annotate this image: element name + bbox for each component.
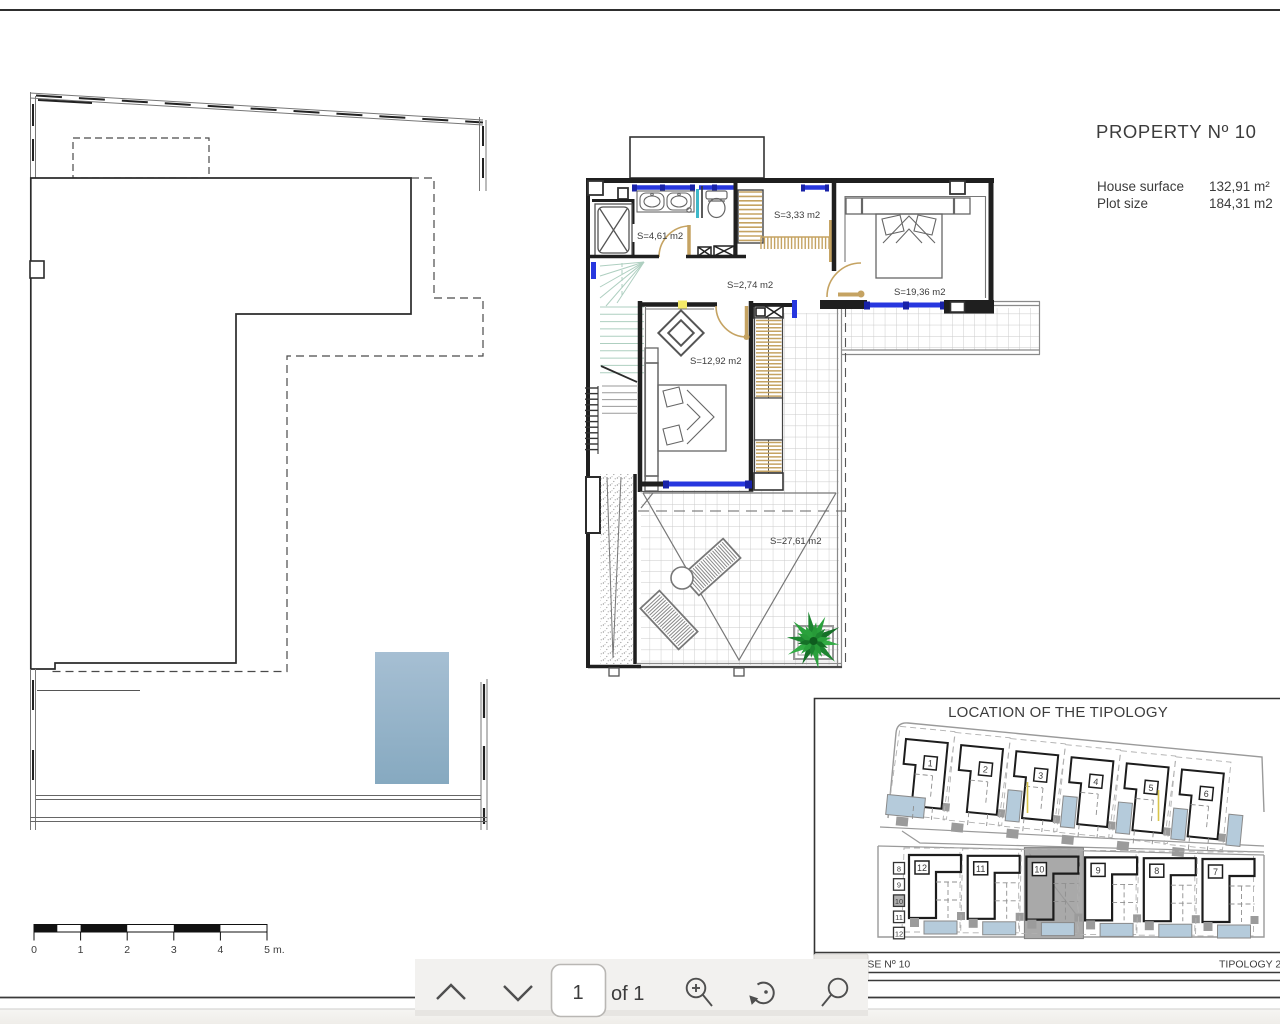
svg-text:Plot size: Plot size	[1097, 196, 1148, 211]
svg-text:3: 3	[171, 944, 177, 956]
svg-text:2: 2	[124, 944, 130, 956]
svg-text:House surface: House surface	[1097, 179, 1184, 194]
svg-text:2: 2	[982, 764, 988, 774]
svg-text:3: 3	[1038, 770, 1044, 780]
svg-text:132,91 m²: 132,91 m²	[1209, 179, 1270, 194]
svg-text:5: 5	[264, 944, 270, 956]
svg-text:TIPOLOGY 2: TIPOLOGY 2	[1219, 959, 1280, 971]
svg-text:12: 12	[895, 929, 903, 938]
svg-text:S=19,36 m2: S=19,36 m2	[894, 287, 946, 298]
svg-text:1: 1	[572, 982, 583, 1004]
svg-text:10: 10	[1034, 865, 1044, 875]
svg-text:7: 7	[1213, 867, 1218, 877]
svg-text:S=27,61 m2: S=27,61 m2	[770, 536, 822, 547]
svg-text:m.: m.	[273, 944, 285, 956]
svg-text:8: 8	[1154, 866, 1159, 876]
svg-text:11: 11	[895, 913, 903, 922]
svg-text:8: 8	[897, 865, 901, 874]
svg-text:10: 10	[895, 897, 903, 906]
svg-text:LOCATION OF THE TIPOLOGY: LOCATION OF THE TIPOLOGY	[948, 704, 1168, 721]
svg-text:S=4,61 m2: S=4,61 m2	[637, 231, 683, 242]
svg-text:S=12,92 m2: S=12,92 m2	[690, 356, 742, 367]
svg-text:S=2,74 m2: S=2,74 m2	[727, 280, 773, 291]
svg-text:12: 12	[917, 863, 927, 873]
svg-text:0: 0	[31, 944, 37, 956]
svg-text:1: 1	[927, 758, 933, 768]
svg-text:4: 4	[217, 944, 223, 956]
svg-text:9: 9	[1096, 865, 1101, 875]
svg-text:5: 5	[1148, 783, 1154, 793]
svg-text:1: 1	[78, 944, 84, 956]
svg-text:4: 4	[1093, 777, 1099, 787]
svg-text:184,31 m2: 184,31 m2	[1209, 196, 1273, 211]
svg-text:11: 11	[976, 864, 985, 874]
svg-text:6: 6	[1203, 789, 1209, 799]
svg-text:9: 9	[897, 881, 901, 890]
svg-text:of 1: of 1	[611, 983, 644, 1005]
svg-text:PROPERTY Nº 10: PROPERTY Nº 10	[1096, 121, 1256, 142]
svg-text:S=3,33 m2: S=3,33 m2	[774, 210, 820, 221]
